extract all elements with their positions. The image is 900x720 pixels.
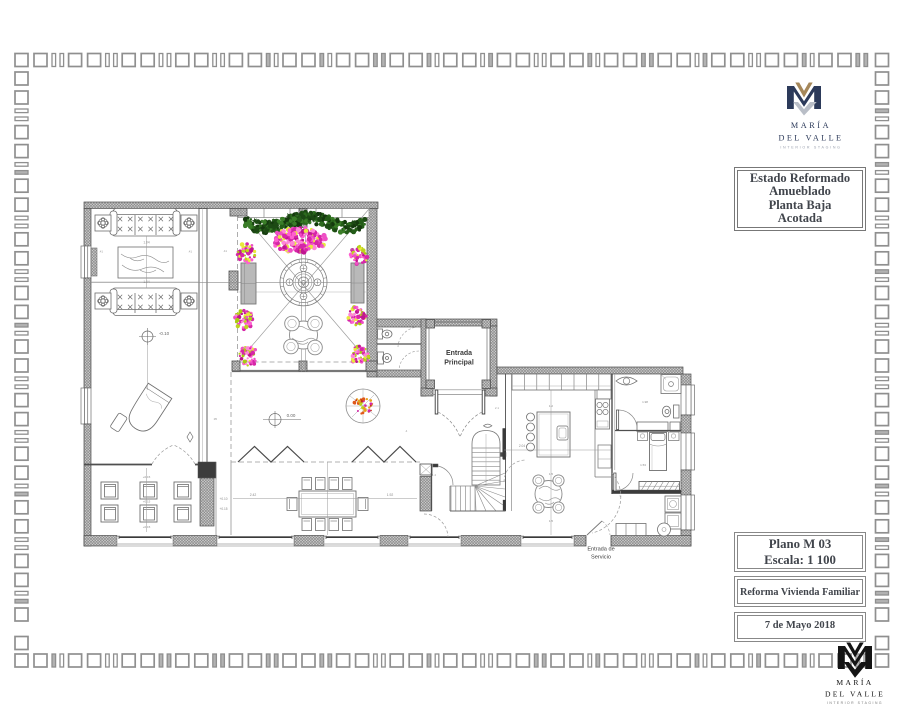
svg-text:INTERIOR STAGING: INTERIOR STAGING [780, 146, 841, 150]
svg-text:1.98: 1.98 [642, 400, 648, 404]
svg-text:1.5: 1.5 [549, 519, 554, 523]
svg-text:.95: .95 [213, 417, 218, 421]
svg-text:1.53: 1.53 [640, 463, 646, 467]
svg-text:2.42: 2.42 [250, 493, 257, 497]
svg-text:.41: .41 [350, 247, 355, 251]
svg-text:.9: .9 [619, 494, 622, 498]
svg-text:-0.10: -0.10 [159, 331, 170, 336]
svg-text:+0.15: +0.15 [143, 525, 151, 529]
svg-text:2.04: 2.04 [519, 444, 525, 448]
svg-text:MARÍA: MARÍA [791, 120, 831, 130]
svg-text:.41: .41 [188, 250, 193, 254]
svg-text:INTERIOR STAGING: INTERIOR STAGING [827, 701, 883, 705]
svg-text:.4: .4 [405, 429, 408, 433]
svg-text:+0.10: +0.10 [219, 497, 227, 501]
svg-text:1.04: 1.04 [143, 241, 149, 245]
svg-text:DEL VALLE: DEL VALLE [779, 134, 844, 143]
svg-text:0.00: 0.00 [287, 413, 296, 418]
svg-text:Servicio: Servicio [591, 555, 611, 561]
svg-text:1.2: 1.2 [549, 404, 554, 408]
svg-text:.41: .41 [99, 250, 104, 254]
svg-text:+0.15: +0.15 [143, 500, 151, 504]
svg-text:Principal: Principal [444, 360, 474, 367]
svg-text:Entrada: Entrada [446, 350, 472, 357]
svg-text:DEL VALLE: DEL VALLE [825, 690, 885, 699]
svg-text:Entrada de: Entrada de [587, 547, 614, 553]
svg-text:1.92: 1.92 [387, 493, 394, 497]
svg-text:.41: .41 [223, 249, 228, 253]
svg-text:+0.15: +0.15 [219, 507, 227, 511]
svg-text:1.4: 1.4 [432, 473, 437, 477]
svg-text:MARÍA: MARÍA [836, 677, 873, 687]
svg-text:1.5: 1.5 [549, 472, 554, 476]
svg-text:2.1: 2.1 [495, 406, 500, 410]
svg-text:+0.15: +0.15 [143, 475, 151, 479]
